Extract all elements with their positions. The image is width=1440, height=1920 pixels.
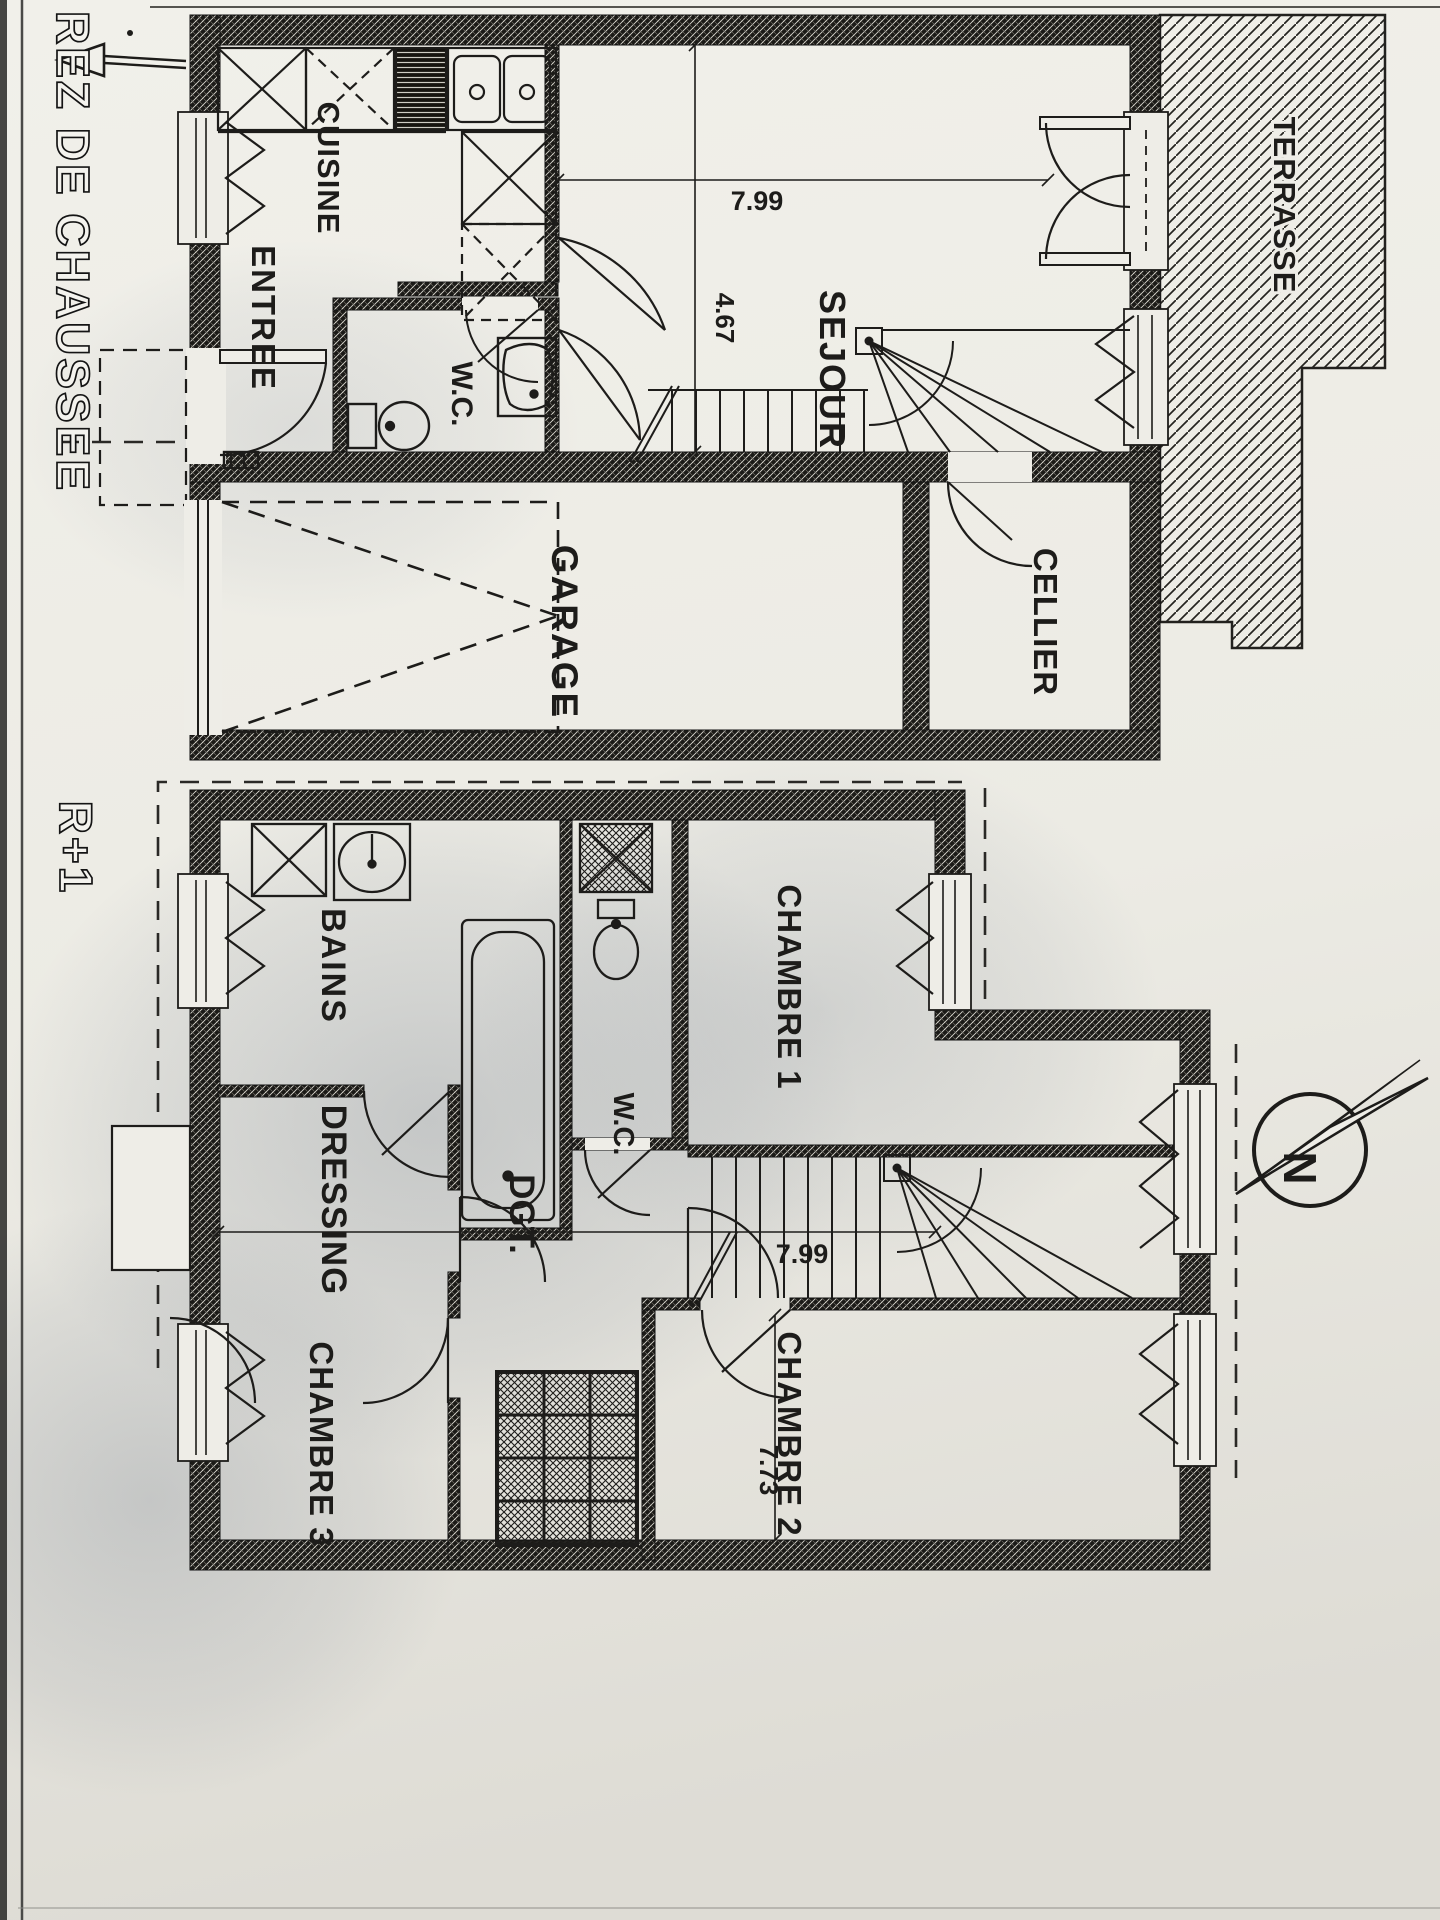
room-label-entree: ENTREE <box>245 245 282 391</box>
room-label-cellier: CELLIER <box>1027 548 1064 696</box>
dim-sejour-width: 7.99 <box>731 186 784 216</box>
dim-first-width: 7.99 <box>776 1239 829 1269</box>
north-label: N <box>1274 1151 1326 1184</box>
first-floor-title: R+1 <box>50 801 102 896</box>
photo-edge <box>0 0 7 1920</box>
room-label-bains: BAINS <box>314 908 352 1024</box>
dim-sejour-depth: 4.67 <box>710 293 740 344</box>
room-label-sejour: SEJOUR <box>812 290 853 450</box>
checkered-panel <box>497 1372 637 1545</box>
water-heater-icon <box>580 824 652 892</box>
ground-floor-title: REZ DE CHAUSSEE <box>47 11 99 493</box>
floor-plan-photo: N REZ DE CHAUSSEE R+1 CUISINE ENTREE W.C… <box>0 0 1440 1920</box>
floor-plan-drawing: N REZ DE CHAUSSEE R+1 CUISINE ENTREE W.C… <box>0 0 1440 1920</box>
room-label-chambre2: CHAMBRE 2 <box>771 1331 808 1536</box>
room-label-dgt: DGT. <box>502 1174 541 1254</box>
garage-door-icon <box>184 500 222 735</box>
room-label-garage: GARAGE <box>544 545 585 719</box>
room-label-terrasse: TERRASSE <box>1267 117 1302 294</box>
dim-first-depth: 7.73 <box>754 1445 784 1496</box>
room-label-wc-ground: W.C. <box>445 362 478 427</box>
room-label-wc-upper: W.C. <box>607 1093 639 1156</box>
chimney-bump <box>112 1126 190 1270</box>
room-label-dressing: DRESSING <box>314 1105 353 1296</box>
room-label-chambre3: CHAMBRE 3 <box>303 1341 340 1546</box>
room-label-chambre1: CHAMBRE 1 <box>771 884 808 1089</box>
room-label-cuisine: CUISINE <box>311 102 346 235</box>
